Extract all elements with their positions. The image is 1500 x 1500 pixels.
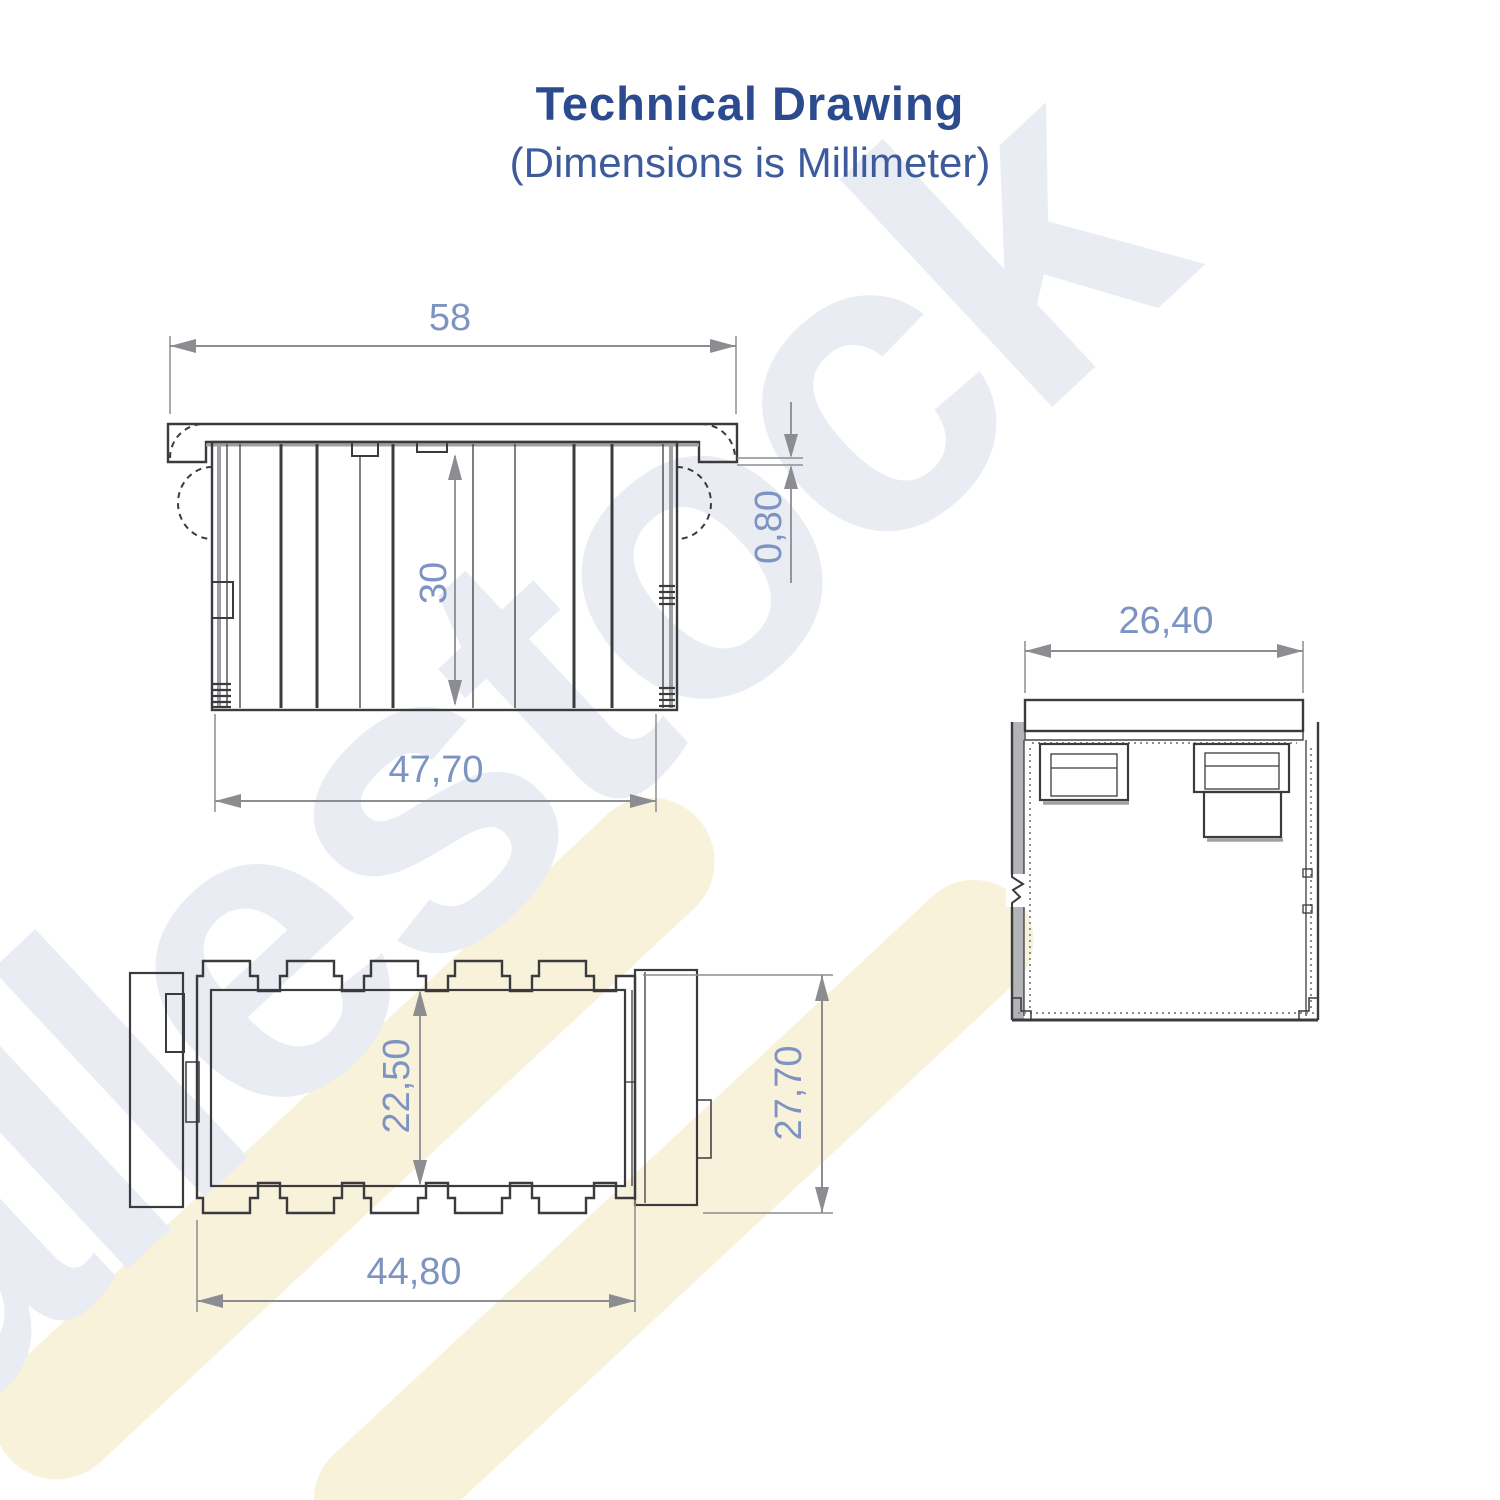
latch-right	[1194, 744, 1289, 840]
dim-front-body-width: 47,70	[388, 749, 483, 791]
dim-front-flange-lip: 0,80	[748, 490, 790, 564]
dim-top-overall-depth: 27,70	[768, 1045, 810, 1140]
dim-top-inner-depth: 22,50	[376, 1038, 418, 1133]
technical-drawing-canvas: 58	[0, 0, 1500, 1500]
wall-hatch-left	[213, 684, 231, 707]
page-subtitle: (Dimensions is Millimeter)	[0, 139, 1500, 187]
dim-58-lines	[170, 336, 736, 414]
dim-front-overall-width: 58	[429, 297, 471, 339]
header: Technical Drawing (Dimensions is Millime…	[0, 76, 1500, 187]
dim-side-top-width: 26,40	[1118, 600, 1213, 642]
dim-2640-lines	[1025, 641, 1303, 693]
top-view: 22,50 27,70 44,80	[130, 961, 833, 1312]
dim-top-body-width: 44,80	[366, 1251, 461, 1293]
latch-left	[1040, 744, 1129, 803]
page-title: Technical Drawing	[0, 76, 1500, 131]
side-view: 26,40	[1006, 600, 1318, 1020]
dim-front-inner-height: 30	[413, 562, 455, 604]
technical-drawing-page: allestock Technical Drawing (Dimensions …	[0, 0, 1500, 1500]
wall-shade	[1012, 722, 1024, 1020]
front-view: 58	[168, 297, 803, 812]
